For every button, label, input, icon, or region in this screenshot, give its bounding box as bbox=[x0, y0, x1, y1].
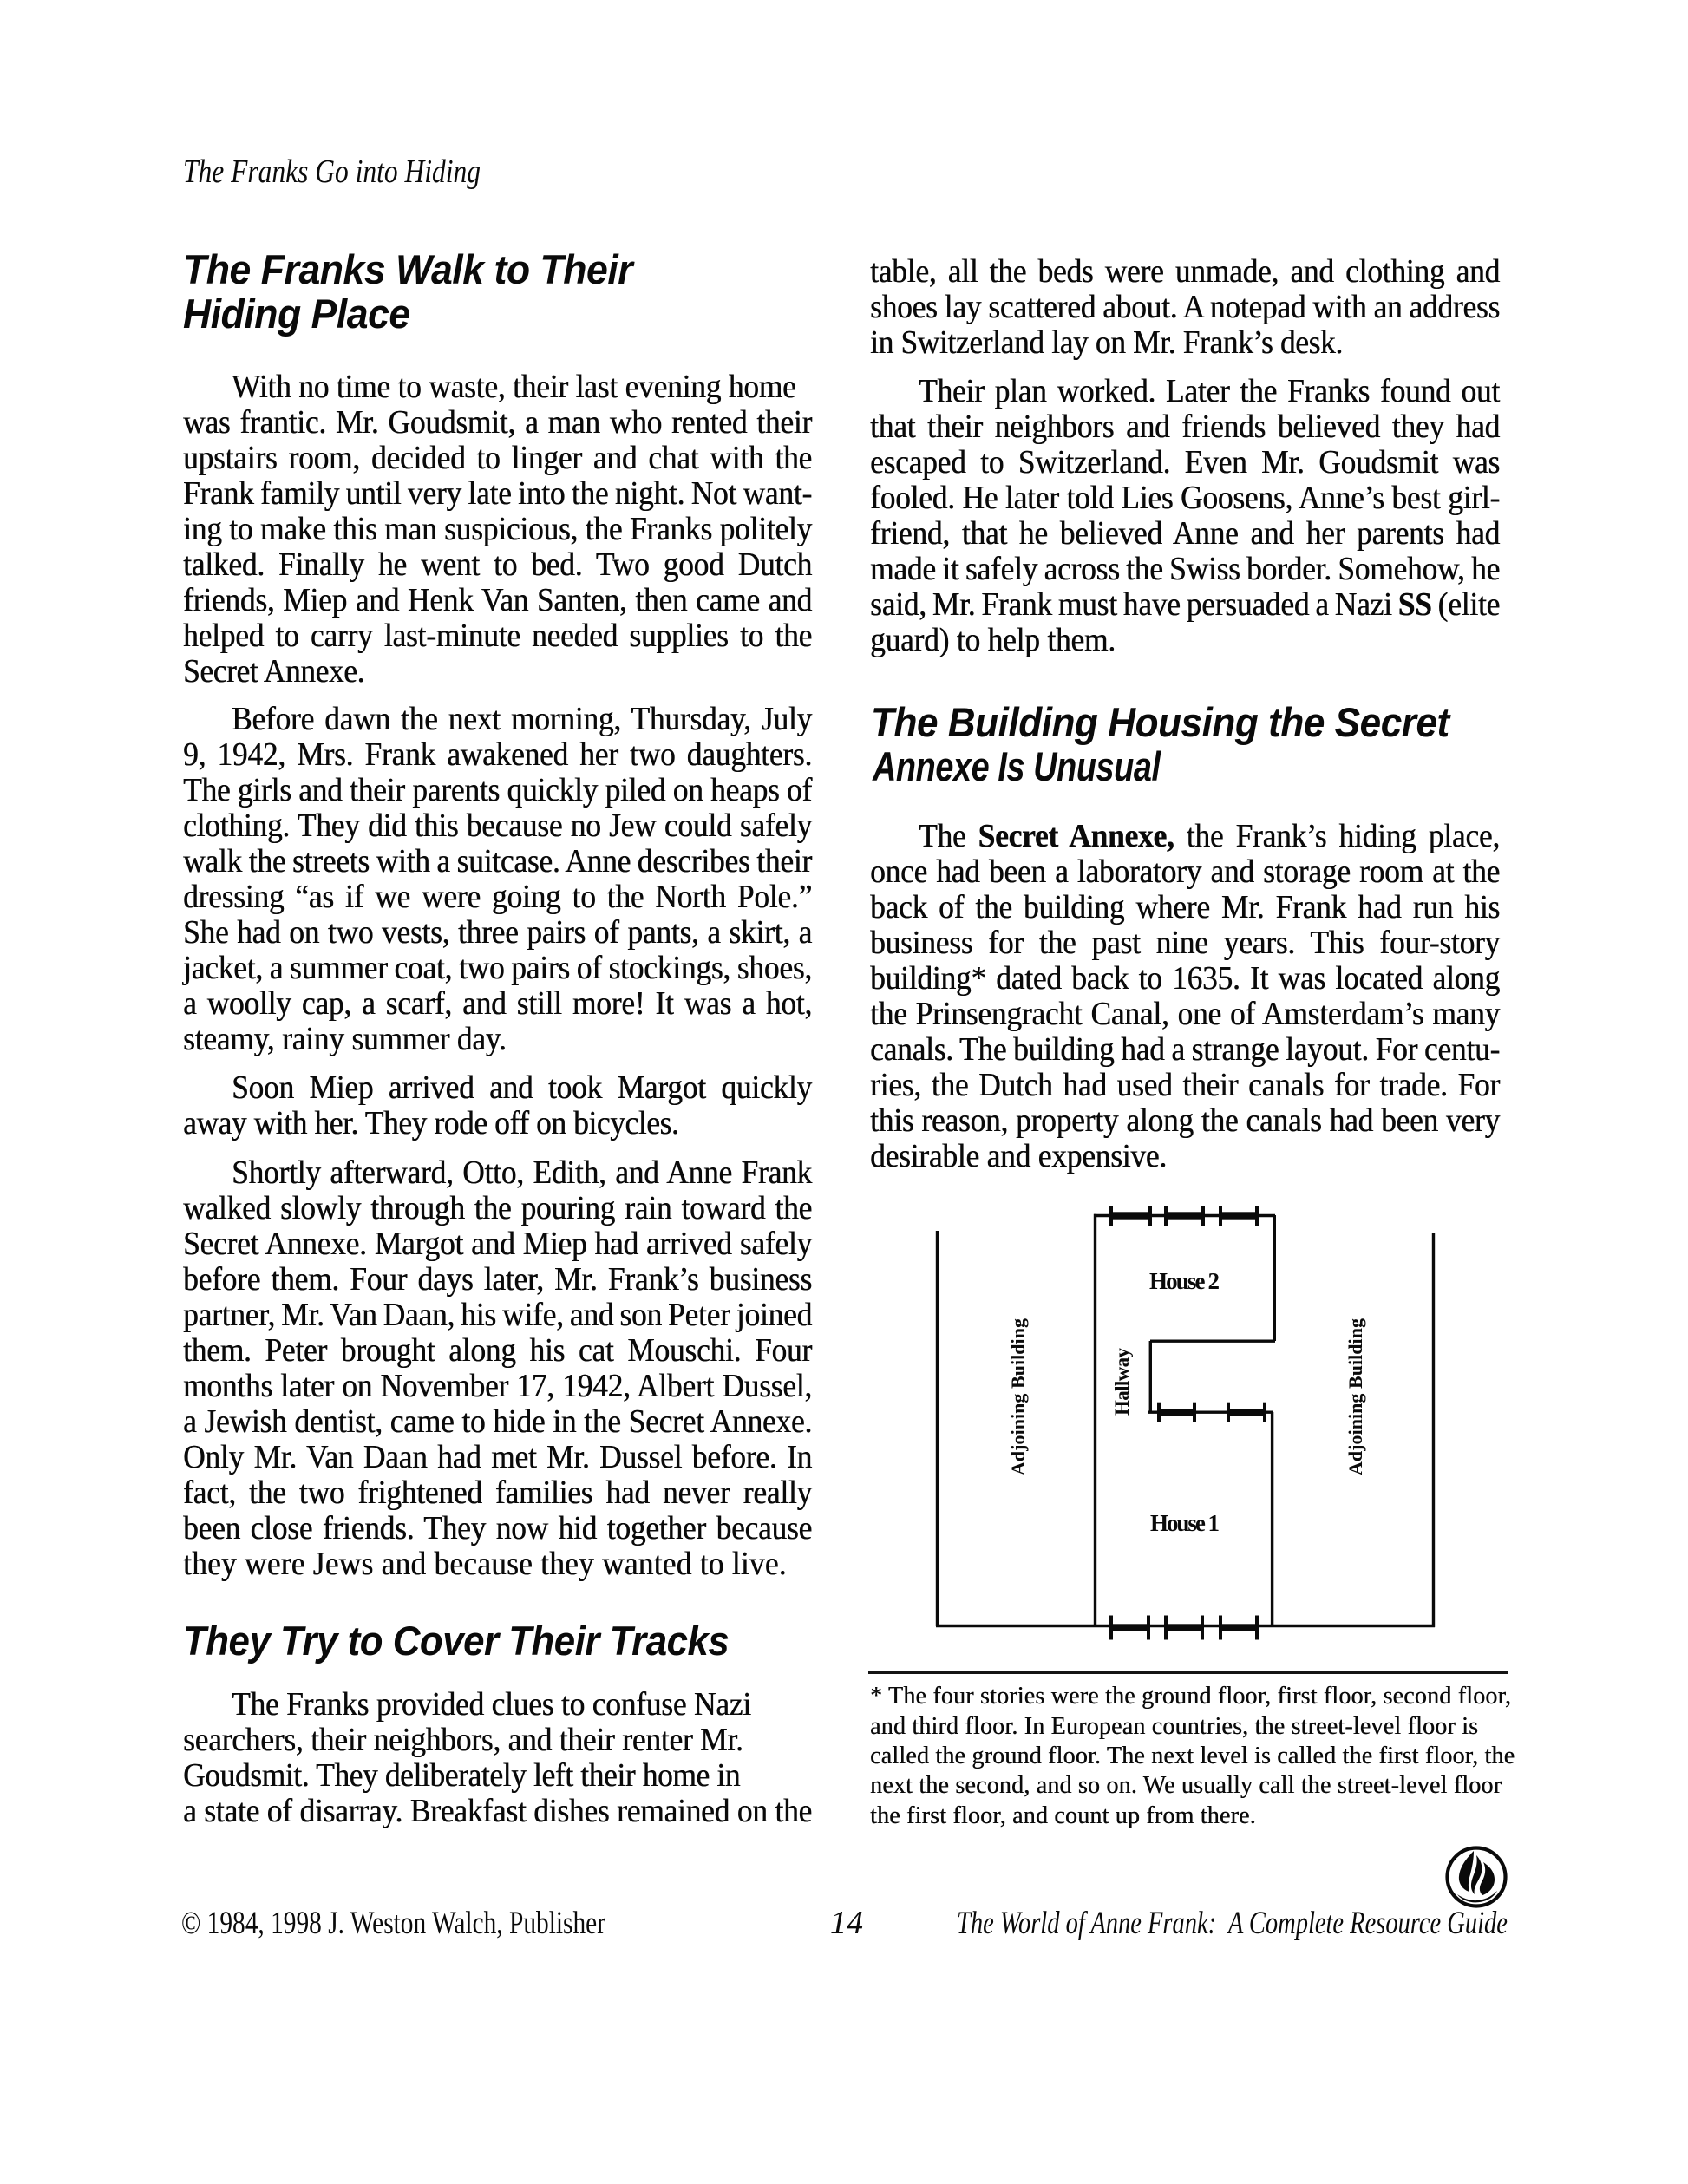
svg-text:Hallway: Hallway bbox=[1111, 1348, 1133, 1416]
svg-text:House 2: House 2 bbox=[1149, 1268, 1220, 1294]
svg-text:House 1: House 1 bbox=[1150, 1510, 1220, 1536]
svg-text:Adjoining Building: Adjoining Building bbox=[1345, 1318, 1366, 1475]
svg-text:Adjoining Building: Adjoining Building bbox=[1007, 1318, 1029, 1475]
